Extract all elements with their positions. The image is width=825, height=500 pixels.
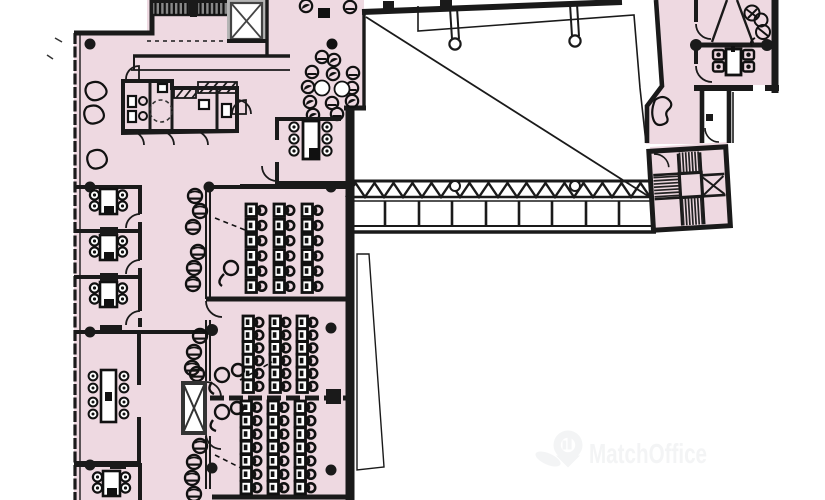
svg-text:MatchOffice: MatchOffice <box>589 438 707 469</box>
